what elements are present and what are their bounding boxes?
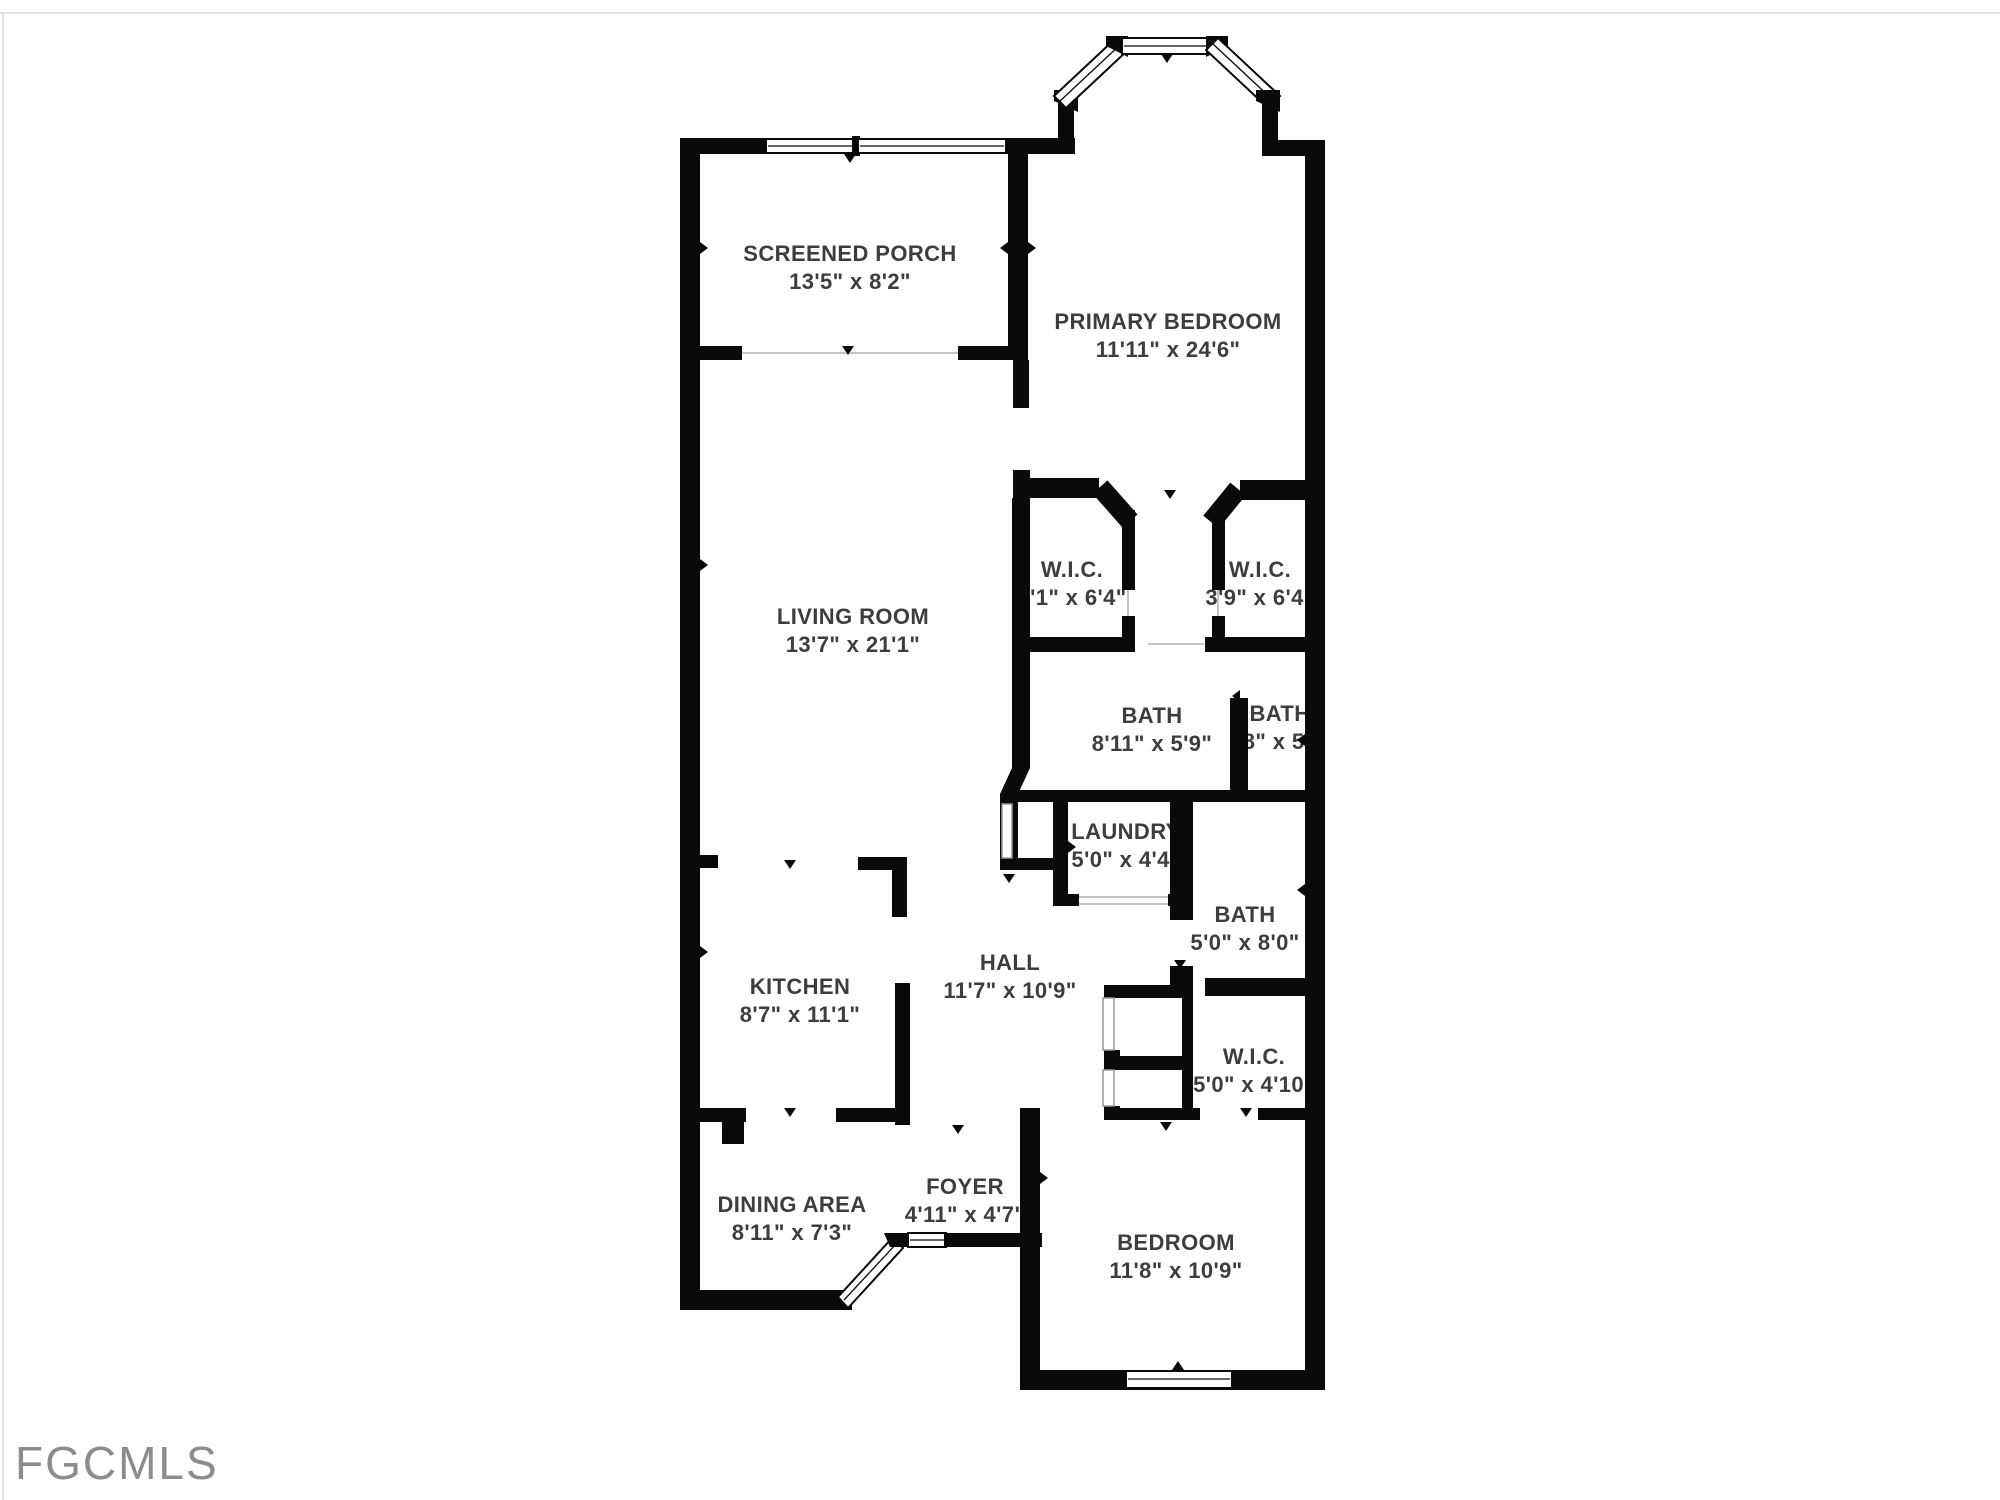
room-name: BATH xyxy=(1190,901,1299,929)
room-dims: 13'5" x 8'2" xyxy=(743,268,956,296)
room-label-bedroom: BEDROOM 11'8" x 10'9" xyxy=(1109,1229,1242,1285)
room-label-wic-primary-left: W.I.C. 4'1" x 6'4" xyxy=(1017,556,1126,612)
room-dims: 8'7" x 11'1" xyxy=(740,1001,861,1029)
room-name: W.I.C. xyxy=(1193,1043,1315,1071)
room-label-wic-primary-right: W.I.C. 3'9" x 6'4" xyxy=(1205,556,1314,612)
room-dims: '8" x 5'9 xyxy=(1237,728,1323,756)
room-dims: 11'8" x 10'9" xyxy=(1109,1257,1242,1285)
room-dims: 4'1" x 6'4" xyxy=(1017,584,1126,612)
room-dims: 5'0" x 4'4" xyxy=(1071,846,1181,874)
room-label-foyer: FOYER 4'11" x 4'7" xyxy=(905,1173,1026,1229)
room-label-dining-area: DINING AREA 8'11" x 7'3" xyxy=(717,1191,866,1247)
room-name: PRIMARY BEDROOM xyxy=(1054,308,1281,336)
floor-plan-image: SCREENED PORCH 13'5" x 8'2" PRIMARY BEDR… xyxy=(0,0,2000,1500)
room-name: DINING AREA xyxy=(717,1191,866,1219)
room-dims: 8'11" x 7'3" xyxy=(717,1219,866,1247)
room-dims: 5'0" x 4'10" xyxy=(1193,1071,1315,1099)
room-labels: SCREENED PORCH 13'5" x 8'2" PRIMARY BEDR… xyxy=(0,0,2000,1500)
room-name: HALL xyxy=(943,949,1076,977)
room-label-bath-primary-left: BATH 8'11" x 5'9" xyxy=(1092,702,1213,758)
room-name: BEDROOM xyxy=(1109,1229,1242,1257)
room-label-hall: HALL 11'7" x 10'9" xyxy=(943,949,1076,1005)
room-label-wic-bedroom: W.I.C. 5'0" x 4'10" xyxy=(1193,1043,1315,1099)
room-name: FOYER xyxy=(905,1173,1026,1201)
room-label-bath-primary-right: BATH '8" x 5'9 xyxy=(1237,700,1323,756)
room-dims: 4'11" x 4'7" xyxy=(905,1201,1026,1229)
room-label-primary-bedroom: PRIMARY BEDROOM 11'11" x 24'6" xyxy=(1054,308,1281,364)
room-dims: 11'11" x 24'6" xyxy=(1054,336,1281,364)
room-dims: 8'11" x 5'9" xyxy=(1092,730,1213,758)
room-dims: 5'0" x 8'0" xyxy=(1190,929,1299,957)
room-name: BATH xyxy=(1237,700,1323,728)
room-dims: 11'7" x 10'9" xyxy=(943,977,1076,1005)
room-name: BATH xyxy=(1092,702,1213,730)
room-dims: 13'7" x 21'1" xyxy=(777,631,929,659)
room-name: LAUNDRY xyxy=(1071,818,1181,846)
mls-watermark: FGCMLS xyxy=(15,1436,219,1490)
room-dims: 3'9" x 6'4" xyxy=(1205,584,1314,612)
room-name: W.I.C. xyxy=(1017,556,1126,584)
room-label-living-room: LIVING ROOM 13'7" x 21'1" xyxy=(777,603,929,659)
room-label-bath-hall: BATH 5'0" x 8'0" xyxy=(1190,901,1299,957)
room-name: W.I.C. xyxy=(1205,556,1314,584)
room-label-screened-porch: SCREENED PORCH 13'5" x 8'2" xyxy=(743,240,956,296)
room-name: LIVING ROOM xyxy=(777,603,929,631)
room-name: SCREENED PORCH xyxy=(743,240,956,268)
room-label-laundry: LAUNDRY 5'0" x 4'4" xyxy=(1071,818,1181,874)
room-label-kitchen: KITCHEN 8'7" x 11'1" xyxy=(740,973,861,1029)
room-name: KITCHEN xyxy=(740,973,861,1001)
